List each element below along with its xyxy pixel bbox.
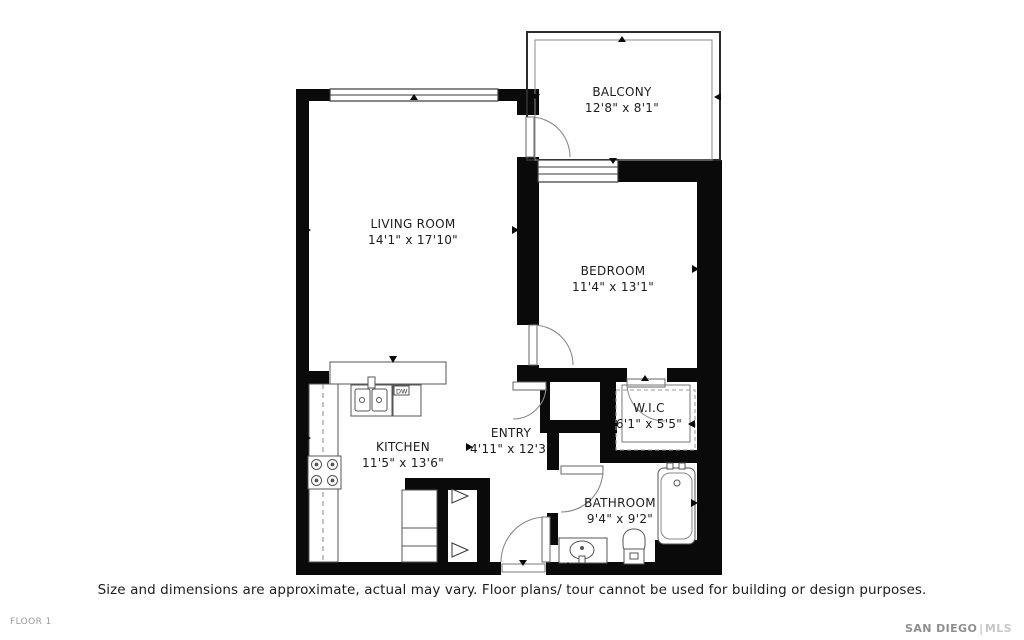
bedroom-door [529, 325, 573, 365]
watermark-separator: | [979, 622, 983, 635]
room-label-wic: W.I.C 6'1" x 5'5" [616, 400, 682, 432]
room-dimensions: 12'8" x 8'1" [585, 100, 659, 116]
balcony-door [526, 117, 570, 157]
room-label-bathroom: BATHROOM 9'4" x 9'2" [584, 495, 656, 527]
room-label-entry: ENTRY 4'11" x 12'3" [470, 425, 552, 457]
bathroom-sink [559, 538, 607, 563]
room-dimensions: 6'1" x 5'5" [616, 416, 682, 432]
kitchen-counter [330, 362, 446, 384]
room-name: W.I.C [616, 400, 682, 416]
floor-number-label: FLOOR 1 [10, 617, 52, 627]
room-dimensions: 11'4" x 13'1" [572, 279, 654, 295]
room-name: KITCHEN [362, 439, 444, 455]
closet-door-chevron [452, 489, 468, 503]
room-name: ENTRY [470, 425, 552, 441]
bathtub [658, 463, 695, 544]
disclaimer-text: Size and dimensions are approximate, act… [0, 582, 1024, 598]
floor-plan-drawing: DW [0, 0, 1024, 640]
room-dimensions: 4'11" x 12'3" [470, 441, 552, 457]
room-label-kitchen: KITCHEN 11'5" x 13'6" [362, 439, 444, 471]
room-name: LIVING ROOM [368, 216, 458, 232]
room-name: BEDROOM [572, 263, 654, 279]
dishwasher: DW [393, 385, 421, 416]
windows [330, 89, 618, 572]
watermark-mls: MLS [985, 622, 1012, 635]
room-dimensions: 11'5" x 13'6" [362, 455, 444, 471]
entry-closet [402, 489, 468, 562]
room-name: BALCONY [585, 84, 659, 100]
room-label-living-room: LIVING ROOM 14'1" x 17'10" [368, 216, 458, 248]
bedroom-balcony-window [538, 160, 618, 182]
floor-plan-page: DW [0, 0, 1024, 640]
room-name: BATHROOM [584, 495, 656, 511]
front-door [501, 517, 550, 562]
sink-faucet [368, 377, 375, 388]
closet-shelving [402, 490, 437, 562]
watermark-san-diego: SAN DIEGO [905, 622, 977, 635]
room-dimensions: 14'1" x 17'10" [368, 232, 458, 248]
stove [308, 456, 341, 489]
room-label-balcony: BALCONY 12'8" x 8'1" [585, 84, 659, 116]
closet-door-chevron [452, 543, 468, 557]
room-label-bedroom: BEDROOM 11'4" x 13'1" [572, 263, 654, 295]
room-dimensions: 9'4" x 9'2" [584, 511, 656, 527]
dishwasher-label: DW [396, 388, 408, 396]
mls-watermark: SAN DIEGO | MLS [905, 622, 1012, 635]
toilet [623, 529, 645, 564]
